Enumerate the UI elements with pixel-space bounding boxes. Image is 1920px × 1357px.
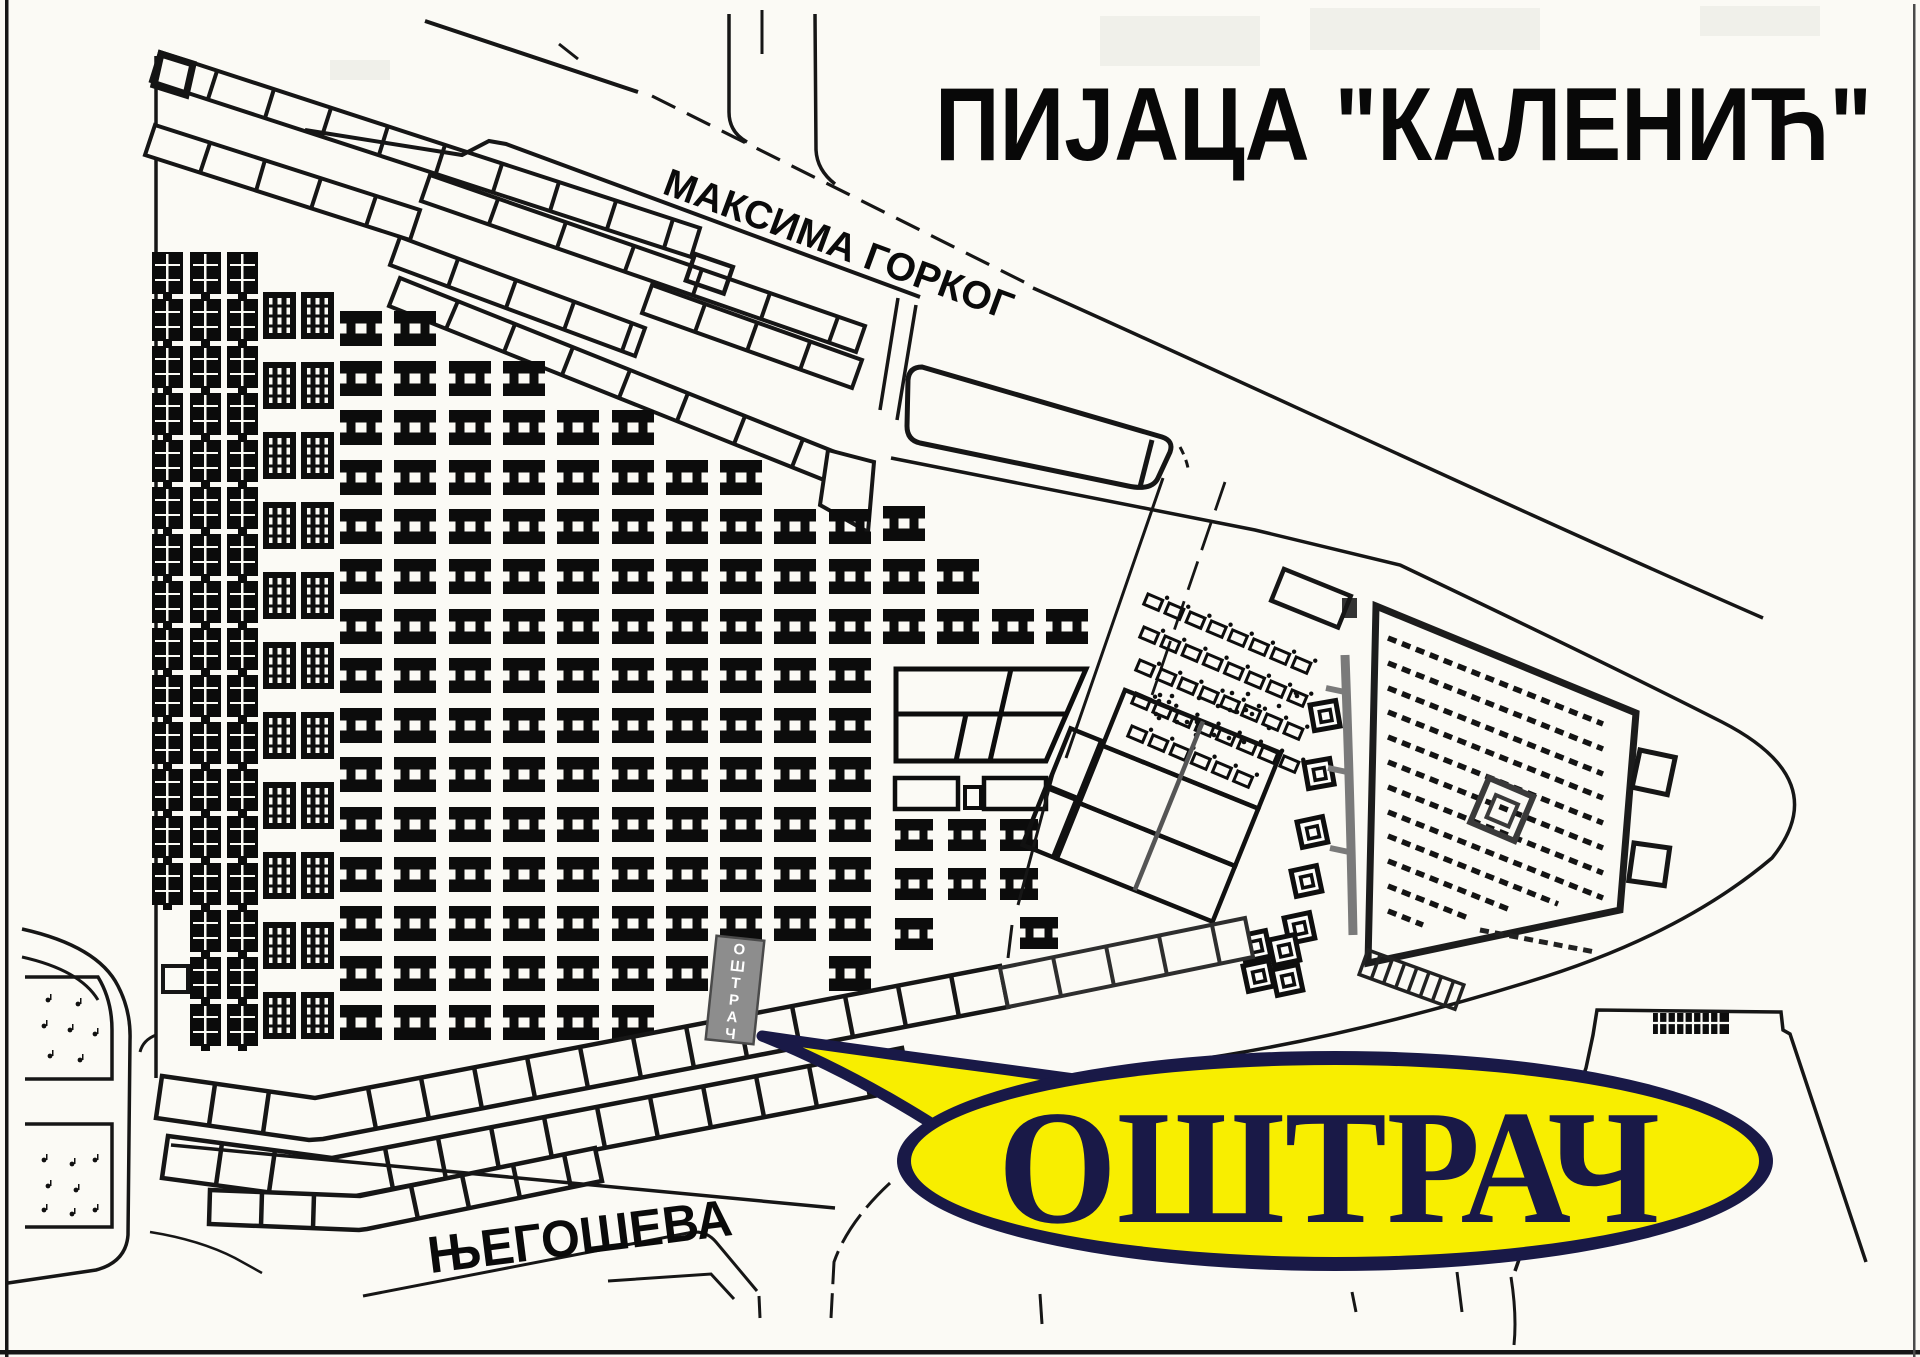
svg-text:ПИЈАЦА "КАЛЕНИЋ": ПИЈАЦА "КАЛЕНИЋ" <box>935 67 1872 183</box>
svg-text:А: А <box>726 1008 739 1026</box>
svg-text:ОШТРАЧ: ОШТРАЧ <box>998 1078 1660 1258</box>
svg-text:Ш: Ш <box>729 957 746 975</box>
svg-text:Р: Р <box>728 991 740 1009</box>
svg-text:Ч: Ч <box>724 1025 736 1043</box>
svg-text:О: О <box>733 941 747 959</box>
svg-text:Т: Т <box>730 975 741 993</box>
